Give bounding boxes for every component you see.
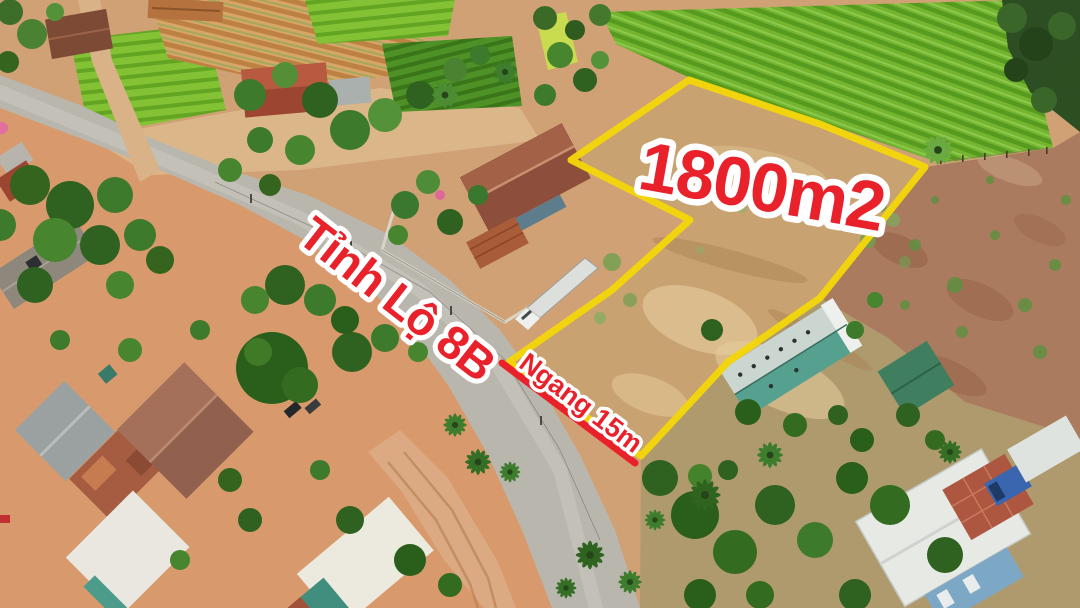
aerial-land-listing-photo: 1800m2 Tỉnh Lộ 8B Ngang 15m — [0, 0, 1080, 608]
aerial-scene: 1800m2 Tỉnh Lộ 8B Ngang 15m — [0, 0, 1080, 608]
